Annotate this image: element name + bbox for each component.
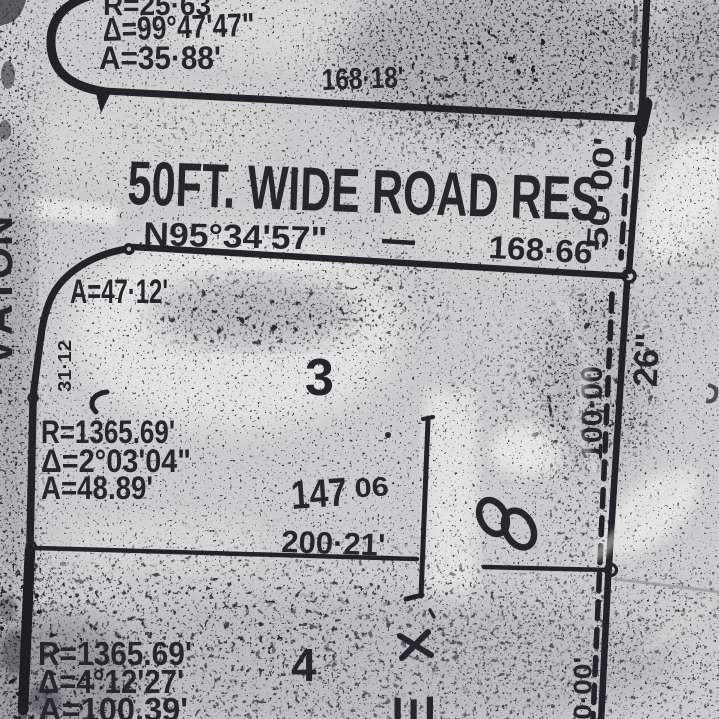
svg-text:O: O: [0, 247, 21, 280]
svg-text:31·12: 31·12: [55, 340, 75, 392]
svg-text:E: E: [382, 694, 445, 719]
svg-text:A=47·12': A=47·12': [70, 273, 168, 311]
svg-text:A=100.39': A=100.39': [38, 691, 188, 719]
svg-text:100·00': 100·00': [570, 657, 598, 719]
svg-text:A=35·88': A=35·88': [99, 40, 221, 76]
svg-text:A: A: [0, 305, 21, 335]
svg-text:I: I: [0, 285, 21, 297]
svg-text:N95°34'57": N95°34'57": [143, 215, 328, 257]
svg-text:168·18': 168·18': [321, 61, 404, 97]
svg-text:N: N: [0, 216, 21, 246]
svg-text:4: 4: [291, 639, 317, 691]
svg-text:147: 147: [289, 470, 348, 518]
svg-text:A=48.89': A=48.89': [41, 470, 153, 506]
svg-text:26": 26": [627, 332, 668, 388]
svg-text:06: 06: [354, 471, 390, 503]
svg-text:V: V: [0, 338, 21, 366]
svg-text:200·21': 200·21': [281, 524, 386, 563]
svg-text:3: 3: [305, 349, 334, 407]
